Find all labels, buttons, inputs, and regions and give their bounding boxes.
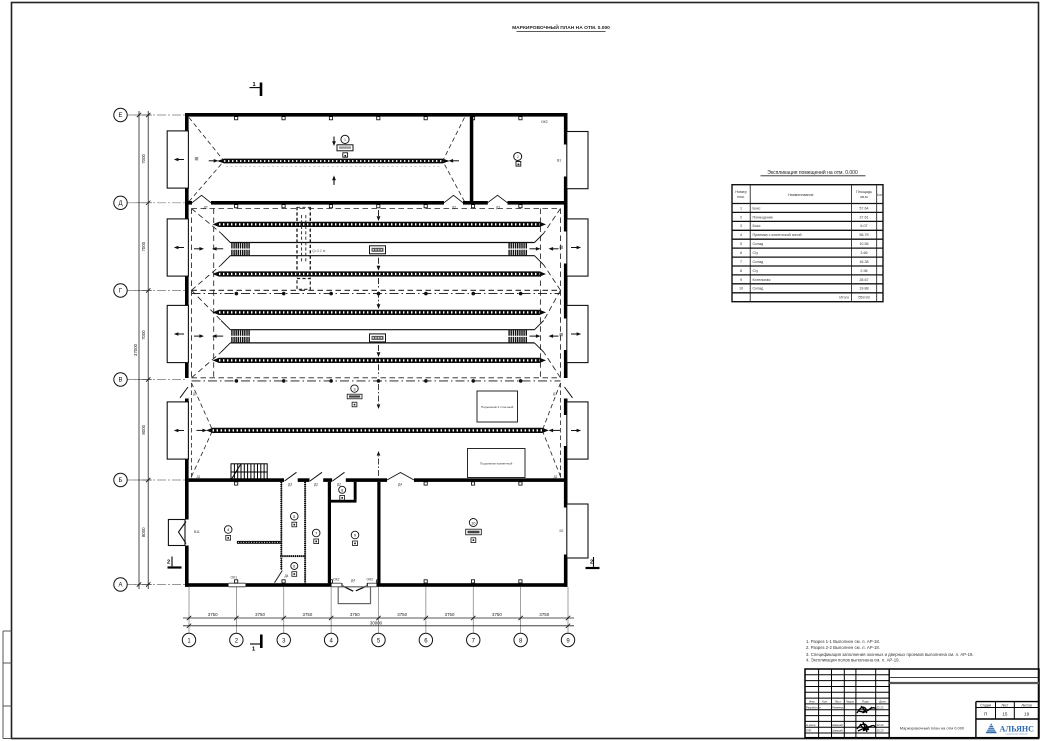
svg-text:3.66: 3.66 <box>860 251 867 255</box>
svg-text:1. Разрез 1-1 Выполнен см. л.: 1. Разрез 1-1 Выполнен см. л. АР-18. <box>806 639 880 644</box>
svg-text:П: П <box>984 712 987 717</box>
svg-text:В: В <box>118 378 122 384</box>
svg-text:2: 2 <box>590 560 593 566</box>
svg-text:Д4: Д4 <box>285 574 289 578</box>
svg-text:2. Разрез 2-2 Выполнен см. л.: 2. Разрез 2-2 Выполнен см. л. АР-18. <box>806 645 880 650</box>
svg-text:Кол.: Кол. <box>822 700 828 704</box>
svg-text:10: 10 <box>471 520 476 525</box>
svg-text:Листов: Листов <box>1021 703 1032 707</box>
svg-text:Склад: Склад <box>753 287 765 291</box>
svg-text:4. Экспликация полов выполнена: 4. Экспликация полов выполнена см. л. АР… <box>806 658 900 663</box>
svg-text:Стадия: Стадия <box>980 703 991 707</box>
svg-text:ОК3: ОК3 <box>541 120 548 124</box>
svg-text:6: 6 <box>740 251 742 255</box>
svg-text:15: 15 <box>1002 712 1008 717</box>
svg-text:1: 1 <box>252 82 255 88</box>
svg-text:Маркировочный план на отм 0.00: Маркировочный план на отм 0.000 <box>900 726 965 731</box>
svg-text:Склад: Склад <box>753 242 765 246</box>
svg-text:Ременюк: Ременюк <box>832 705 844 709</box>
svg-text:02.23: 02.23 <box>877 723 884 727</box>
svg-text:Бокс: Бокс <box>753 206 761 210</box>
svg-text:7000: 7000 <box>141 153 146 163</box>
svg-text:Д1: Д1 <box>554 475 558 479</box>
svg-text:№док: №док <box>846 700 854 704</box>
svg-text:ОК2: ОК2 <box>333 577 340 581</box>
svg-text:57.64: 57.64 <box>859 206 868 210</box>
svg-text:02.23: 02.23 <box>877 705 884 709</box>
svg-text:В1: В1 <box>557 159 561 163</box>
svg-text:С/у: С/у <box>753 251 759 255</box>
svg-text:1: 1 <box>740 206 742 210</box>
svg-text:3750: 3750 <box>445 612 455 617</box>
svg-text:3750: 3750 <box>397 612 407 617</box>
svg-text:Лист: Лист <box>1001 703 1008 707</box>
svg-text:пом.: пом. <box>737 195 745 199</box>
svg-text:5: 5 <box>740 242 742 246</box>
svg-text:8000: 8000 <box>141 527 146 537</box>
svg-text:Шамрай: Шамрай <box>832 723 843 727</box>
svg-text:АЛЬЯНС: АЛЬЯНС <box>1000 724 1035 733</box>
svg-text:10.56: 10.56 <box>859 242 868 246</box>
svg-text:02.23: 02.23 <box>877 729 884 733</box>
svg-text:Q=3.2 м: Q=3.2 м <box>312 249 326 253</box>
svg-text:58.79: 58.79 <box>859 233 868 237</box>
svg-text:Котельная: Котельная <box>753 278 771 282</box>
svg-text:Помещение: Помещение <box>753 215 773 219</box>
svg-text:Б: Б <box>119 478 123 484</box>
svg-text:Наименование: Наименование <box>788 193 814 197</box>
svg-text:Д1: Д1 <box>197 475 201 479</box>
svg-text:строительная компания: строительная компания <box>1005 734 1027 736</box>
svg-text:Д3: Д3 <box>288 482 292 486</box>
svg-text:Приемка с клиентской зоной: Приемка с клиентской зоной <box>753 233 802 237</box>
svg-text:3750: 3750 <box>350 612 360 617</box>
svg-text:3750: 3750 <box>208 612 218 617</box>
svg-text:8000: 8000 <box>141 424 146 434</box>
svg-text:Экспликация помещений на отм.: Экспликация помещений на отм. 0.000 <box>767 169 858 176</box>
svg-text:30000: 30000 <box>370 621 383 626</box>
svg-text:Д4: Д4 <box>351 579 355 583</box>
svg-text:Кол.: Кол. <box>877 193 884 197</box>
svg-text:4: 4 <box>740 233 742 237</box>
svg-text:В11: В11 <box>194 530 200 534</box>
svg-text:Д1: Д1 <box>553 392 557 396</box>
svg-text:Итого: Итого <box>839 296 849 300</box>
svg-text:37000: 37000 <box>133 343 138 356</box>
svg-text:Подъемник ножничный: Подъемник ножничный <box>480 462 513 466</box>
svg-text:3750: 3750 <box>255 612 265 617</box>
svg-text:2: 2 <box>167 560 170 566</box>
svg-text:37.61: 37.61 <box>859 215 868 219</box>
svg-text:2.96: 2.96 <box>860 269 867 273</box>
svg-text:6.07: 6.07 <box>860 224 867 228</box>
svg-text:19.88: 19.88 <box>859 287 868 291</box>
svg-text:8: 8 <box>740 269 742 273</box>
svg-text:3: 3 <box>740 224 742 228</box>
svg-text:7000: 7000 <box>141 241 146 251</box>
svg-text:Склад: Склад <box>753 260 765 264</box>
svg-text:Подъемник 2 стоечный: Подъемник 2 стоечный <box>481 405 513 409</box>
svg-text:Подп.: Подп. <box>862 700 870 704</box>
svg-text:Площадь: Площадь <box>856 190 872 194</box>
svg-text:7000: 7000 <box>141 330 146 340</box>
svg-text:559.93: 559.93 <box>858 296 869 300</box>
svg-text:Лист: Лист <box>835 700 842 704</box>
svg-text:10: 10 <box>739 287 743 291</box>
svg-text:Бокс: Бокс <box>753 224 761 228</box>
svg-text:28.67: 28.67 <box>859 278 868 282</box>
svg-text:3750: 3750 <box>303 612 313 617</box>
svg-text:1: 1 <box>252 647 255 653</box>
svg-text:3. Спецификация заполнения око: 3. Спецификация заполнения оконных и две… <box>806 652 974 657</box>
svg-text:Н.контр: Н.контр <box>806 723 816 727</box>
svg-text:7: 7 <box>740 260 742 264</box>
svg-text:ГИП: ГИП <box>806 729 811 733</box>
svg-text:19: 19 <box>1024 712 1030 717</box>
svg-text:Шамрай: Шамрай <box>832 729 843 733</box>
svg-text:Разработал: Разработал <box>806 705 821 709</box>
svg-text:Дата: Дата <box>879 700 886 704</box>
svg-text:Д2: Д2 <box>337 482 341 486</box>
svg-text:2: 2 <box>740 215 742 219</box>
svg-text:Д1: Д1 <box>193 392 197 396</box>
svg-text:16.38: 16.38 <box>859 260 868 264</box>
svg-text:А: А <box>118 583 122 589</box>
svg-text:3750: 3750 <box>492 612 502 617</box>
svg-text:Д2: Д2 <box>314 482 318 486</box>
svg-text:Номер: Номер <box>735 190 746 194</box>
svg-text:Д4: Д4 <box>398 482 402 486</box>
svg-text:ОК1: ОК1 <box>231 576 238 580</box>
svg-text:В2: В2 <box>560 529 564 533</box>
svg-text:9: 9 <box>740 278 742 282</box>
svg-text:ОК2: ОК2 <box>367 577 374 581</box>
svg-text:кв.м: кв.м <box>860 195 868 199</box>
svg-text:Изм: Изм <box>809 700 814 704</box>
svg-text:3750: 3750 <box>539 612 549 617</box>
svg-text:Е: Е <box>118 113 122 119</box>
svg-text:С/у: С/у <box>753 269 759 273</box>
svg-text:Д: Д <box>118 201 122 207</box>
